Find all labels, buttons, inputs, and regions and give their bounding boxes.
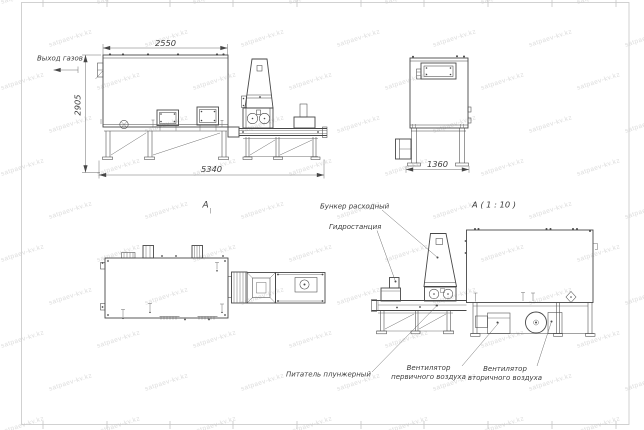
hopper-plan xyxy=(247,273,276,304)
callout-secondary-fan-line2: вторичного воздуха xyxy=(468,374,542,382)
detail-view-a: А ( 1 : 10 ) xyxy=(286,200,598,382)
feeder-box-detail xyxy=(425,287,457,301)
callout-primary-fan-line2: первичного воздуха xyxy=(391,373,466,381)
gas-outlet-label: Выход газов xyxy=(37,55,83,63)
conveyor-support-truss-front xyxy=(243,137,320,160)
dim-5340: 5340 xyxy=(99,160,324,179)
section-a-mark: А xyxy=(202,201,211,214)
dim-2550-text: 2550 xyxy=(155,38,176,48)
callout-hydrostation: Гидростанция xyxy=(329,223,381,231)
dim-5340-text: 5340 xyxy=(201,164,222,174)
dim-2550: 2550 xyxy=(103,38,228,55)
detail-title: А ( 1 : 10 ) xyxy=(471,200,516,210)
callout-primary-fan-line1: Вентилятор xyxy=(407,364,451,372)
hydrostation-unit xyxy=(381,278,401,302)
furnace-support-frame xyxy=(103,131,229,160)
plan-body xyxy=(105,258,228,318)
side-body xyxy=(410,58,468,128)
feeder-plan xyxy=(276,273,326,304)
dim-2905-text: 2905 xyxy=(73,94,83,115)
furnace-body-detail xyxy=(465,228,598,303)
hopper-detail xyxy=(424,234,457,287)
side-view: 1360 xyxy=(396,55,472,173)
primary-air-fan xyxy=(476,313,511,334)
chimney-stub-plan xyxy=(143,246,154,259)
stud-marks-plan xyxy=(121,263,224,320)
louver-plan xyxy=(122,253,136,259)
drawing-sheet: satpaev-kv.kzsatpaev-kv.kzsatpaev-kv.kzs… xyxy=(0,0,644,430)
gas-outlet-flange xyxy=(96,63,104,79)
hopper-chimney-front xyxy=(242,59,274,108)
front-view: 2550 2905 5340 Выход газов А xyxy=(37,38,327,214)
sheet-frame xyxy=(22,0,630,429)
section-a-label: А xyxy=(202,201,209,211)
ribbed-coupling-plan xyxy=(228,272,247,303)
dim-1360-text: 1360 xyxy=(427,159,448,169)
technical-drawing-canvas: 2550 2905 5340 Выход газов А xyxy=(0,0,644,430)
hopper-stub-plan xyxy=(192,246,203,259)
callout-feeder: Питатель плунжерный xyxy=(286,371,371,379)
callout-secondary-fan-line1: Вентилятор xyxy=(483,365,527,373)
dim-2905: 2905 xyxy=(73,55,102,173)
top-hatch-side xyxy=(417,63,457,79)
furnace-frame-detail xyxy=(471,303,596,337)
furnace-body xyxy=(101,53,228,127)
feeder-support-truss xyxy=(377,311,455,334)
gas-outlet-callout: Выход газов xyxy=(37,55,83,74)
feeder-box-front xyxy=(243,108,273,128)
fan-housing-side xyxy=(396,139,412,159)
plan-view xyxy=(101,246,326,321)
callout-hopper: Бункер расходный xyxy=(320,203,390,211)
